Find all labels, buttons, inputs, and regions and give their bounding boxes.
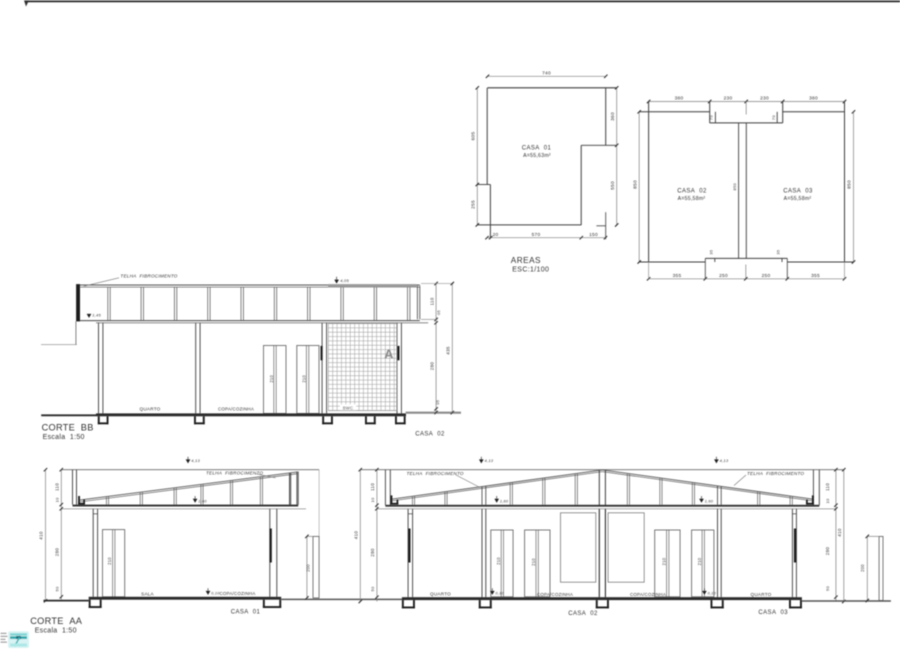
svg-text:COPA/COZINHA: COPA/COZINHA [537,592,573,597]
svg-text:230: 230 [724,96,733,102]
svg-text:4,13: 4,13 [485,458,494,463]
svg-text:35: 35 [776,249,781,254]
svg-text:A=55,63m²: A=55,63m² [523,153,551,159]
svg-text:COPA/COZINHA: COPA/COZINHA [219,591,255,596]
svg-text:CASA 02: CASA 02 [677,188,707,194]
svg-text:850: 850 [847,180,853,189]
svg-text:255: 255 [471,200,477,209]
svg-text:280: 280 [430,362,435,371]
svg-text:110: 110 [430,297,435,305]
svg-text:200: 200 [860,564,865,572]
svg-text:1,45: 1,45 [92,312,101,317]
svg-text:150: 150 [589,232,598,238]
svg-text:0,10: 0,10 [708,591,717,595]
svg-text:CORTE BB: CORTE BB [42,422,94,432]
svg-text:BWC: BWC [343,405,354,410]
svg-text:05: 05 [436,310,441,315]
svg-text:210: 210 [496,557,501,565]
svg-text:210: 210 [107,557,112,565]
svg-text:10: 10 [825,498,830,503]
svg-text:200: 200 [306,564,311,572]
svg-text:435: 435 [446,346,451,355]
svg-text:SALA: SALA [141,591,154,596]
svg-text:70: 70 [709,115,714,120]
svg-text:TELHA FIBROCIMENTO: TELHA FIBROCIMENTO [120,274,177,279]
svg-text:AREAS: AREAS [511,256,541,265]
svg-text:570: 570 [532,232,541,238]
svg-text:ESC:1/100: ESC:1/100 [512,267,549,274]
svg-text:550: 550 [610,181,616,190]
svg-text:CASA 02: CASA 02 [568,611,598,617]
svg-text:210: 210 [662,557,667,565]
svg-text:0,10: 0,10 [496,591,505,595]
svg-text:210: 210 [301,375,306,383]
svg-text:210: 210 [697,557,702,565]
svg-text:CASA 01: CASA 01 [522,145,552,151]
svg-text:A: A [384,347,394,362]
svg-text:210: 210 [531,558,536,566]
svg-text:COPA/COZINHA: COPA/COZINHA [630,592,666,597]
svg-text:CASA 02: CASA 02 [415,431,445,437]
svg-text:410: 410 [354,531,359,540]
svg-text:35: 35 [708,249,713,254]
svg-text:380: 380 [809,96,818,102]
svg-text:280: 280 [825,547,830,556]
svg-text:250: 250 [719,273,728,279]
svg-text:QUARTO: QUARTO [430,592,451,597]
svg-text:70: 70 [771,115,776,120]
svg-text:280: 280 [55,548,60,557]
svg-text:380: 380 [675,96,684,102]
svg-text:355: 355 [673,273,682,279]
svg-text:CASA 03: CASA 03 [783,188,813,194]
svg-text:850: 850 [632,180,638,189]
svg-text:A=55,58m²: A=55,58m² [784,196,812,202]
svg-text:1,60: 1,60 [705,499,714,503]
svg-text:20: 20 [493,232,499,238]
svg-text:1,60: 1,60 [500,499,509,503]
svg-text:50: 50 [55,586,60,591]
svg-text:Escala 1:50: Escala 1:50 [35,627,77,634]
svg-text:355: 355 [811,273,820,279]
svg-text:210: 210 [269,375,274,383]
svg-text:Escala 1:50: Escala 1:50 [43,434,85,441]
svg-text:COPA/COZINHA: COPA/COZINHA [218,407,254,412]
svg-text:410: 410 [39,531,44,540]
svg-text:250: 250 [762,273,771,279]
svg-text:4,13: 4,13 [720,458,729,463]
svg-text:TELHA FIBROCIMENTO: TELHA FIBROCIMENTO [407,471,464,476]
svg-text:4,05: 4,05 [340,278,349,283]
svg-text:360: 360 [610,112,616,121]
svg-text:05: 05 [435,399,440,404]
svg-text:50: 50 [370,586,375,591]
svg-text:TELHA FIBROCIMENTO: TELHA FIBROCIMENTO [747,471,804,476]
svg-text:280: 280 [370,548,375,557]
svg-text:605: 605 [471,132,477,141]
svg-text:CASA 03: CASA 03 [758,610,788,616]
svg-text:110: 110 [370,483,375,491]
svg-text:740: 740 [542,71,551,77]
svg-text:110: 110 [825,483,830,491]
svg-text:1,60: 1,60 [198,499,207,503]
svg-text:850: 850 [732,183,737,191]
svg-text:QUARTO: QUARTO [751,592,772,597]
svg-text:10: 10 [370,497,375,502]
svg-text:CASA 01: CASA 01 [231,609,261,615]
svg-text:110: 110 [55,483,60,491]
svg-text:A=55,58m²: A=55,58m² [678,196,706,202]
svg-text:230: 230 [760,96,769,102]
svg-text:410: 410 [837,528,842,537]
svg-text:TELHA FIBROCIMENTO: TELHA FIBROCIMENTO [206,471,263,476]
svg-text:50: 50 [825,586,830,591]
svg-text:CORTE AA: CORTE AA [30,616,83,626]
svg-text:QUARTO: QUARTO [140,407,161,412]
svg-text:10: 10 [55,497,60,502]
svg-text:4,13: 4,13 [191,458,200,463]
